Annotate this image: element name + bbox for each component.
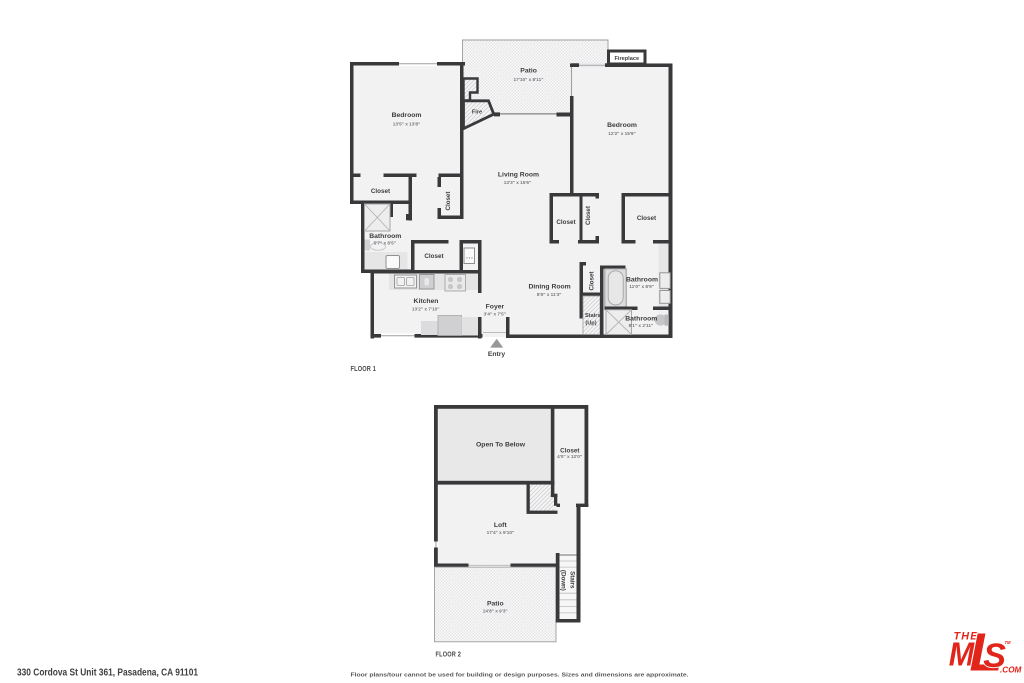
svg-text:Loft: Loft — [494, 522, 508, 529]
svg-text:5'7" x 8'5": 5'7" x 8'5" — [374, 240, 396, 245]
svg-text:3'4" x 7'5": 3'4" x 7'5" — [484, 311, 506, 316]
svg-text:Stairs: Stairs — [585, 313, 601, 319]
svg-text:Entry: Entry — [488, 351, 506, 358]
svg-text:FLOOR 1: FLOOR 1 — [351, 366, 377, 373]
svg-text:13'2" x 7'10": 13'2" x 7'10" — [412, 307, 440, 312]
svg-text:Closet: Closet — [556, 219, 576, 226]
svg-text:(Up): (Up) — [585, 320, 596, 326]
svg-text:Closet: Closet — [424, 253, 444, 260]
svg-text:330 Cordova St Unit 361, Pasad: 330 Cordova St Unit 361, Pasadena, CA 91… — [17, 668, 198, 679]
svg-text:13'5" x 13'8": 13'5" x 13'8" — [393, 122, 421, 127]
svg-text:Floor plans/tour cannot be use: Floor plans/tour cannot be used for buil… — [351, 672, 689, 678]
svg-text:Closet: Closet — [589, 272, 596, 291]
svg-text:Patio: Patio — [487, 601, 504, 608]
svg-text:8'1" x 2'11": 8'1" x 2'11" — [629, 323, 654, 328]
svg-text:Stairs: Stairs — [569, 571, 576, 589]
svg-text:Closet: Closet — [371, 188, 391, 195]
svg-text:Closet: Closet — [637, 215, 657, 222]
svg-text:14'8" x 9'3": 14'8" x 9'3" — [483, 609, 508, 614]
svg-text:4'0" x 12'0": 4'0" x 12'0" — [557, 454, 582, 459]
svg-text:Foyer: Foyer — [486, 303, 505, 310]
svg-text:11'0" x 8'9": 11'0" x 8'9" — [629, 284, 654, 289]
svg-text:FLOOR 2: FLOOR 2 — [436, 652, 462, 659]
svg-text:Dining Room: Dining Room — [528, 283, 570, 290]
svg-text:Living Room: Living Room — [498, 172, 539, 179]
svg-text:Bedroom: Bedroom — [392, 112, 422, 119]
svg-text:Closet: Closet — [585, 206, 592, 225]
svg-text:Open To Below: Open To Below — [476, 441, 526, 448]
svg-text:8'5" x 11'3": 8'5" x 11'3" — [537, 292, 562, 297]
svg-text:(Down): (Down) — [560, 570, 567, 591]
svg-text:17'10" x 8'11": 17'10" x 8'11" — [514, 77, 544, 82]
svg-text:Bathroom: Bathroom — [369, 233, 401, 240]
svg-text:TM: TM — [1005, 640, 1012, 645]
svg-text:Bathroom: Bathroom — [625, 315, 657, 322]
svg-text:12'2" x 15'9": 12'2" x 15'9" — [608, 131, 636, 136]
svg-text:Fire: Fire — [472, 110, 482, 116]
svg-text:Patio: Patio — [520, 68, 537, 75]
svg-text:Fireplace: Fireplace — [615, 56, 640, 62]
svg-text:Bathroom: Bathroom — [626, 276, 658, 283]
svg-text:17'4" x 9'10": 17'4" x 9'10" — [487, 530, 515, 535]
svg-text:.COM: .COM — [1000, 666, 1022, 675]
svg-text:Closet: Closet — [445, 192, 452, 211]
svg-text:13'3" x 15'6": 13'3" x 15'6" — [504, 180, 532, 185]
svg-text:Bedroom: Bedroom — [607, 122, 637, 129]
svg-text:Kitchen: Kitchen — [414, 298, 439, 305]
